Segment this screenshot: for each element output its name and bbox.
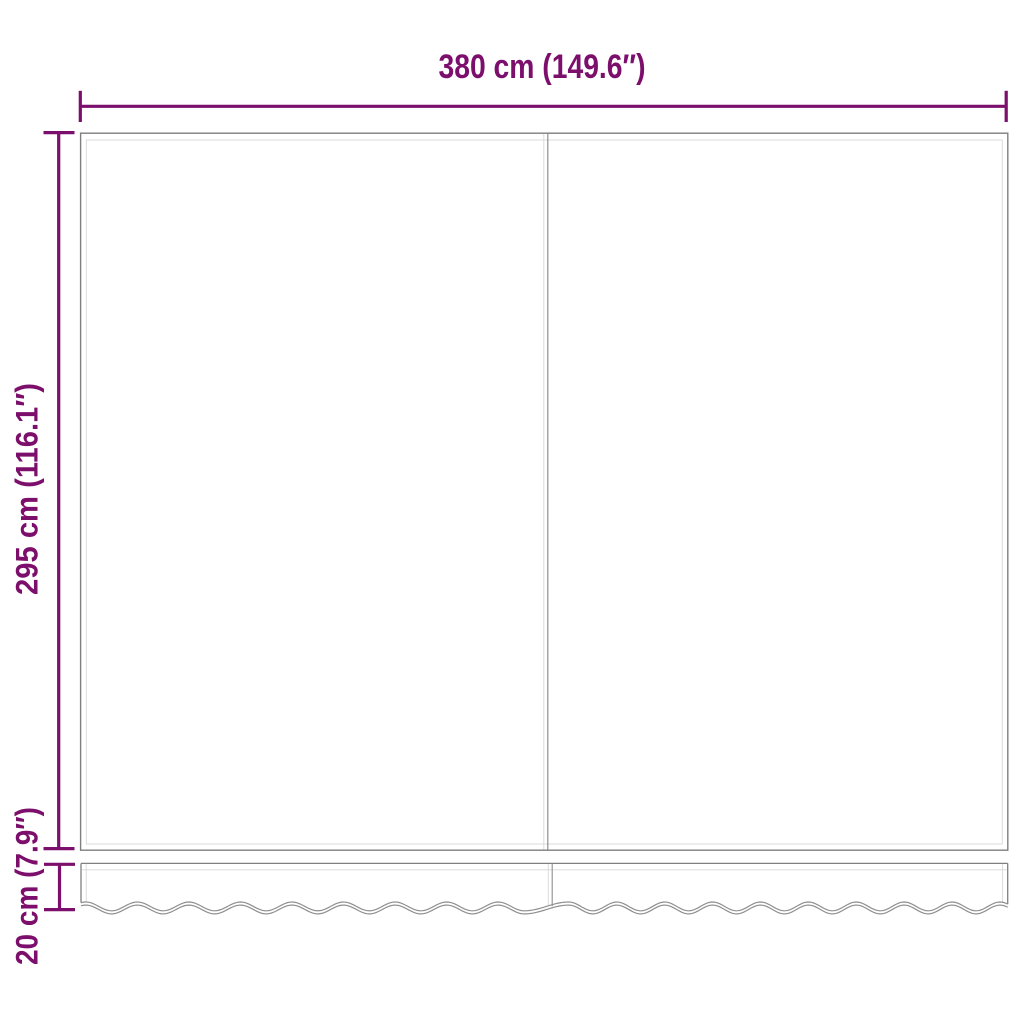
svg-text:380 cm (149.6″): 380 cm (149.6″) — [439, 48, 646, 86]
svg-text:295 cm (116.1″): 295 cm (116.1″) — [9, 383, 45, 595]
svg-text:20 cm (7.9″): 20 cm (7.9″) — [9, 807, 45, 965]
